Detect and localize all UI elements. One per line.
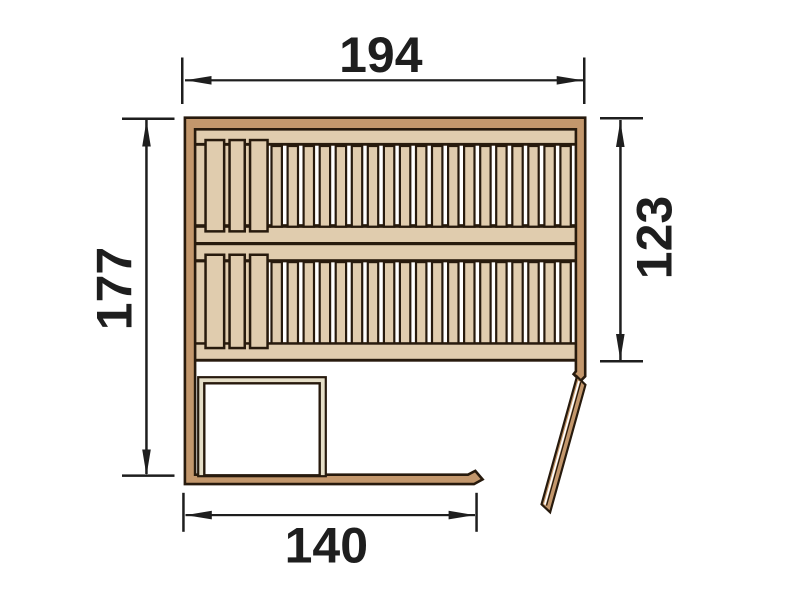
svg-text:194: 194 [339,27,423,83]
svg-text:140: 140 [285,517,368,573]
svg-text:177: 177 [87,247,143,330]
svg-text:123: 123 [627,196,683,279]
